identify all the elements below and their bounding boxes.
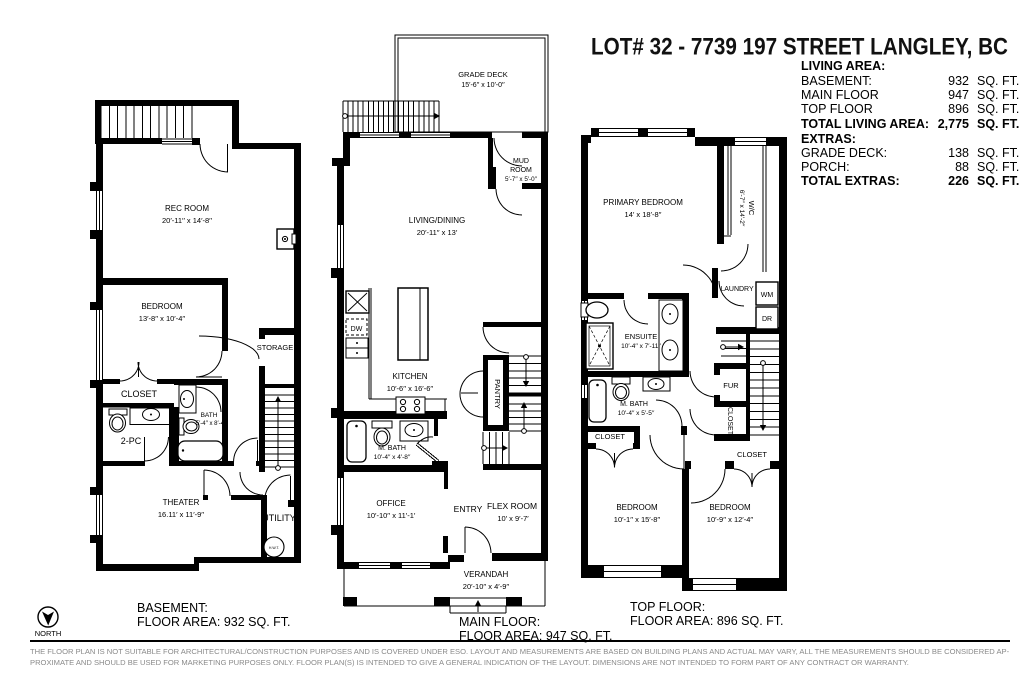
svg-text:FLOOR AREA: 932 SQ. FT.: FLOOR AREA: 932 SQ. FT. (137, 615, 291, 629)
svg-text:DW: DW (351, 326, 363, 333)
svg-text:PRIMARY BEDROOM: PRIMARY BEDROOM (603, 198, 683, 207)
svg-text:MAIN FLOOR:: MAIN FLOOR: (459, 615, 540, 629)
svg-text:947: 947 (948, 88, 969, 102)
svg-text:W/C: W/C (747, 201, 756, 216)
svg-text:CLOSET: CLOSET (737, 450, 767, 459)
svg-text:LAUNDRY: LAUNDRY (720, 286, 754, 293)
svg-text:BATH: BATH (201, 412, 218, 419)
svg-text:SQ. FT.: SQ. FT. (977, 174, 1019, 188)
svg-text:M. BATH: M. BATH (378, 445, 406, 452)
svg-text:TOP FLOOR:: TOP FLOOR: (630, 600, 705, 614)
svg-text:20′-11′′ x 14′-8′′: 20′-11′′ x 14′-8′′ (162, 216, 213, 225)
svg-text:M. BATH: M. BATH (620, 401, 648, 408)
svg-text:BEDROOM: BEDROOM (141, 302, 183, 311)
svg-text:10′ x 9′-7′: 10′ x 9′-7′ (497, 514, 529, 523)
svg-text:GRADE DECK:: GRADE DECK: (801, 146, 887, 160)
svg-text:932: 932 (948, 74, 969, 88)
svg-text:THE FLOOR PLAN IS NOT SUITABLE: THE FLOOR PLAN IS NOT SUITABLE FOR ARCHI… (30, 647, 1010, 656)
svg-text:PORCH:: PORCH: (801, 160, 850, 174)
svg-text:15′-6′′ x 10′-0′′: 15′-6′′ x 10′-0′′ (461, 82, 505, 89)
svg-text:13′-8′′ x 10′-4′′: 13′-8′′ x 10′-4′′ (139, 314, 186, 323)
svg-text:TOTAL EXTRAS:: TOTAL EXTRAS: (801, 174, 900, 188)
svg-text:SQ. FT.: SQ. FT. (977, 146, 1019, 160)
svg-text:5′-7′′ x 5′-0′′: 5′-7′′ x 5′-0′′ (505, 176, 538, 183)
svg-text:ENTRY: ENTRY (454, 504, 483, 514)
svg-text:UTILITY: UTILITY (262, 513, 296, 523)
svg-text:THEATER: THEATER (163, 498, 200, 507)
svg-text:SQ. FT.: SQ. FT. (977, 88, 1019, 102)
svg-text:H.W.T.: H.W.T. (269, 546, 280, 550)
svg-text:10′-4′′ x 7′-11′′: 10′-4′′ x 7′-11′′ (621, 343, 661, 350)
svg-text:226: 226 (948, 174, 969, 188)
svg-text:FLOOR AREA: 896 SQ. FT.: FLOOR AREA: 896 SQ. FT. (630, 614, 784, 628)
svg-text:PANTRY: PANTRY (493, 379, 502, 409)
svg-text:WM: WM (761, 292, 774, 299)
svg-text:VERANDAH: VERANDAH (464, 570, 509, 579)
svg-text:896: 896 (948, 102, 969, 116)
svg-text:10′-9′′ x 12′-4′′: 10′-9′′ x 12′-4′′ (707, 515, 754, 524)
svg-text:CLOSET: CLOSET (595, 432, 625, 441)
svg-text:20′-11′′ x 13′: 20′-11′′ x 13′ (417, 228, 458, 237)
svg-text:SQ. FT.: SQ. FT. (977, 74, 1019, 88)
svg-text:BASEMENT:: BASEMENT: (137, 601, 208, 615)
svg-text:TOP FLOOR: TOP FLOOR (801, 102, 873, 116)
svg-text:TOTAL LIVING AREA:: TOTAL LIVING AREA: (801, 117, 929, 131)
svg-text:CLOSET: CLOSET (726, 407, 733, 436)
svg-text:LIVING/DINING: LIVING/DINING (409, 216, 465, 225)
svg-text:2-PC: 2-PC (121, 436, 142, 446)
svg-text:FLEX ROOM: FLEX ROOM (487, 501, 537, 511)
svg-text:20′-10′′ x 4′-9′′: 20′-10′′ x 4′-9′′ (463, 582, 510, 591)
svg-text:88: 88 (955, 160, 969, 174)
svg-text:10′-4′′ x 5′-5′′: 10′-4′′ x 5′-5′′ (618, 410, 655, 417)
svg-text:DR: DR (762, 316, 772, 323)
svg-text:LIVING AREA:: LIVING AREA: (801, 59, 885, 73)
svg-text:10′-1′′ x 15′-8′′: 10′-1′′ x 15′-8′′ (614, 515, 661, 524)
svg-text:BASEMENT:: BASEMENT: (801, 74, 872, 88)
svg-text:5′-4′′ x 8′-4′′: 5′-4′′ x 8′-4′′ (196, 421, 227, 427)
svg-text:SQ. FT.: SQ. FT. (977, 160, 1019, 174)
svg-text:14′ x 18′-8′′: 14′ x 18′-8′′ (625, 210, 662, 219)
svg-text:MUD: MUD (513, 158, 529, 165)
svg-text:REC ROOM: REC ROOM (165, 204, 209, 213)
svg-text:SQ. FT.: SQ. FT. (977, 117, 1019, 131)
svg-text:GRADE DECK: GRADE DECK (458, 70, 508, 79)
svg-text:6′-7′′ x 14′-2′′: 6′-7′′ x 14′-2′′ (738, 190, 745, 227)
svg-text:2,775: 2,775 (938, 117, 969, 131)
svg-text:BEDROOM: BEDROOM (616, 503, 658, 512)
svg-text:PROXIMATE AND SHOULD BE USED F: PROXIMATE AND SHOULD BE USED FOR MARKETI… (30, 658, 909, 667)
svg-text:BEDROOM: BEDROOM (709, 503, 751, 512)
svg-text:ENSUITE: ENSUITE (625, 332, 658, 341)
svg-text:MAIN FLOOR: MAIN FLOOR (801, 88, 879, 102)
svg-text:ROOM: ROOM (510, 167, 532, 174)
svg-text:NORTH: NORTH (35, 629, 62, 638)
svg-text:SQ. FT.: SQ. FT. (977, 102, 1019, 116)
svg-text:138: 138 (948, 146, 969, 160)
svg-text:LOT# 32 - 7739 197 STREET LAN: LOT# 32 - 7739 197 STREET LANGLEY, BC (591, 34, 1008, 61)
svg-text:FUR: FUR (723, 381, 739, 390)
svg-text:STORAGE: STORAGE (257, 343, 294, 352)
svg-text:16.11′ x 11′-9′′: 16.11′ x 11′-9′′ (158, 510, 205, 519)
svg-text:CLOSET: CLOSET (121, 389, 158, 399)
svg-text:10′-4′′ x 4′-8′′: 10′-4′′ x 4′-8′′ (374, 454, 411, 461)
svg-text:KITCHEN: KITCHEN (392, 372, 427, 381)
svg-text:EXTRAS:: EXTRAS: (801, 132, 856, 146)
svg-text:10′-10′′ x 11′-1′: 10′-10′′ x 11′-1′ (367, 511, 416, 520)
svg-text:OFFICE: OFFICE (376, 499, 405, 508)
svg-text:10′-6′′ x 16′-6′′: 10′-6′′ x 16′-6′′ (387, 384, 434, 393)
